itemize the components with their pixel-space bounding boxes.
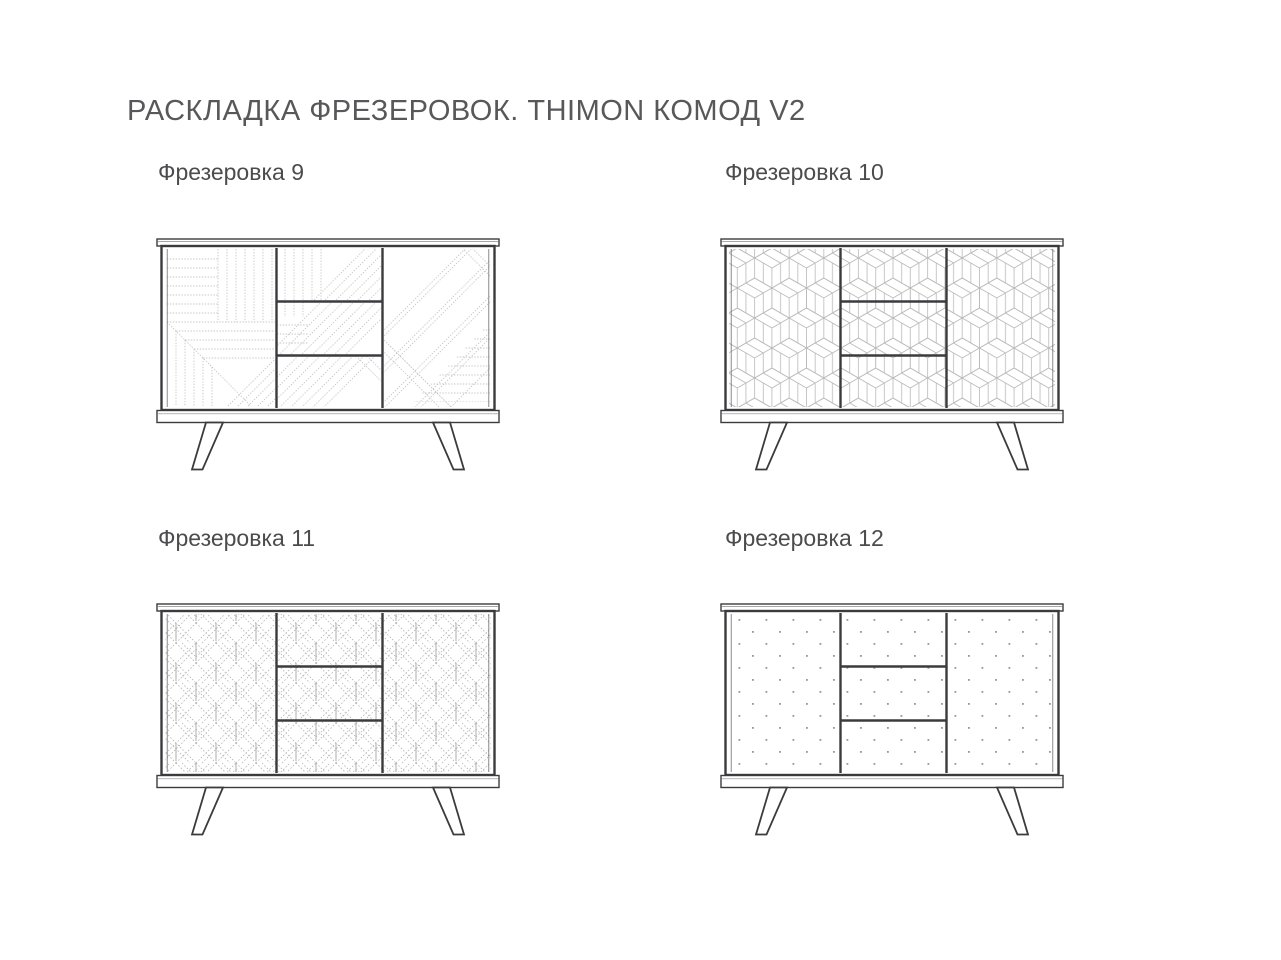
milling-pattern-11 [165,614,491,772]
variant-label-10: Фрезеровка 10 [725,159,884,186]
dresser-diagram-12 [720,603,1064,839]
dresser-diagram-11 [156,603,500,839]
spec-sheet: РАСКЛАДКА ФРЕЗЕРОВОК. THIMON КОМОД V2 Фр… [0,0,1281,960]
page-title: РАСКЛАДКА ФРЕЗЕРОВОК. THIMON КОМОД V2 [127,95,806,128]
variant-label-11: Фрезеровка 11 [158,525,315,552]
dresser-diagram-9 [156,238,500,474]
variant-label-12: Фрезеровка 12 [725,525,884,552]
milling-pattern-12 [729,614,1055,772]
dresser-diagram-10 [720,238,1064,474]
milling-pattern-10 [729,249,1055,407]
variant-label-9: Фрезеровка 9 [158,159,304,186]
